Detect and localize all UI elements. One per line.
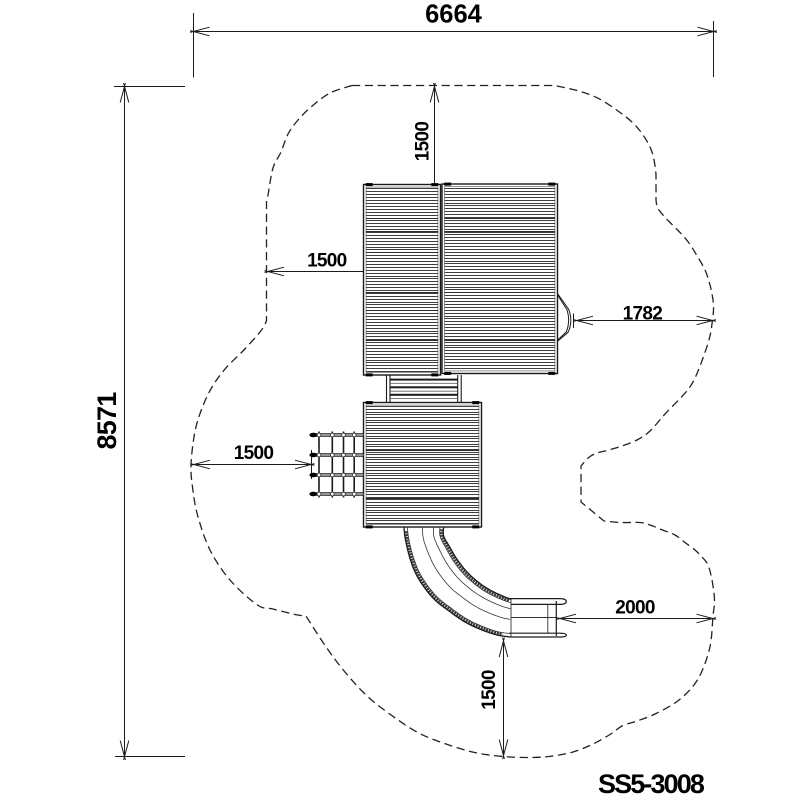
svg-text:1500: 1500 [413,122,434,162]
svg-text:SS5-3008: SS5-3008 [598,769,705,799]
svg-text:1500: 1500 [234,443,274,464]
svg-text:2000: 2000 [615,598,655,619]
svg-text:8571: 8571 [92,392,122,450]
svg-text:1500: 1500 [307,251,347,272]
svg-text:1500: 1500 [479,670,500,710]
svg-text:6664: 6664 [425,1,483,29]
svg-text:1782: 1782 [623,304,663,325]
